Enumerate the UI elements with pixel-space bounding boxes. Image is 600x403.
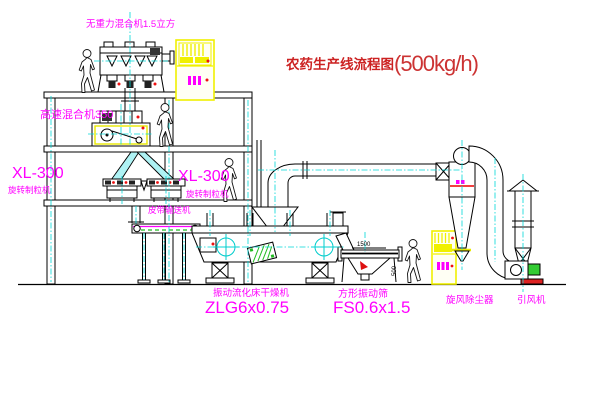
cad-drawing: 无重力混合机1.5立方 高速混合机350 XL-300 旋转制粒机 XL-300… (0, 0, 600, 403)
cabinet-block (180, 57, 193, 63)
feed-duct (252, 161, 436, 228)
valve-body (145, 81, 152, 88)
mixer-side-pipe (162, 54, 170, 61)
red-indicator (212, 243, 215, 246)
conveyor-frame (132, 224, 200, 233)
red-indicator (142, 127, 145, 130)
fan-housing (505, 261, 528, 279)
induced-draft-fan (505, 261, 543, 284)
label-fan: 引风机 (517, 294, 546, 306)
person-top-floor (79, 50, 94, 93)
dryer-vent-pipe (333, 213, 343, 226)
dim-text-500: 500 (392, 265, 398, 276)
red-indicator (207, 60, 210, 63)
process-flow-diagram: 无重力混合机1.5立方 高速混合机350 XL-300 旋转制粒机 XL-300… (0, 0, 600, 403)
granulator-block (129, 181, 135, 185)
mixer-leg (161, 75, 164, 92)
red-indicator (154, 83, 157, 86)
granulator-block (149, 181, 155, 185)
mixer-top-stub (146, 42, 155, 47)
dryer-spring-support (206, 263, 234, 283)
mixer-leg (98, 75, 101, 92)
mixer-top-stub (104, 42, 113, 47)
mixer-gearbox (150, 48, 160, 55)
red-indicator (137, 116, 140, 119)
label-granulator-right-model: XL-300 (178, 168, 230, 185)
label-granulator-left-name: 旋转制粒机 (8, 185, 51, 195)
conveyor-pulley (134, 225, 140, 231)
label-high-speed-mixer: 高速混合机350 (40, 107, 113, 121)
dryer-spring-support (306, 263, 334, 283)
mixer-discharge-valves (107, 75, 157, 88)
cabinet-block (434, 244, 452, 252)
label-sieve-model: FS0.6x1.5 (333, 298, 411, 317)
label-cyclone: 旋风除尘器 (446, 294, 494, 306)
granulator-block (105, 181, 111, 185)
mixer-side-cap (170, 51, 174, 64)
small-pulley (136, 137, 142, 143)
dim-text-1500: 1500 (357, 242, 371, 248)
sieve-leg (342, 258, 344, 282)
dryer-top-rim (192, 226, 348, 233)
red-indicator (206, 79, 209, 82)
red-indicator (112, 181, 115, 184)
red-indicator (118, 83, 121, 86)
label-granulator-right-name: 旋转制粒机 (186, 189, 229, 199)
red-indicator (125, 181, 128, 184)
control-cabinet-top (176, 40, 214, 100)
sieve-hopper (348, 258, 390, 274)
valve (143, 75, 153, 81)
building-slab-middle (44, 146, 252, 152)
diagram-title-capacity: (500kg/h) (394, 51, 478, 76)
diagram-title: 农药生产线流程图 (285, 56, 394, 72)
building-slab-top (44, 92, 252, 98)
sieve-outlet (361, 274, 369, 280)
valve (107, 75, 117, 81)
chute-left-branch (111, 152, 139, 180)
gravity-free-mixer (98, 42, 174, 111)
label-dryer-model: ZLG6x0.75 (205, 298, 289, 317)
red-indicator (156, 181, 159, 184)
granulator-v-hopper (141, 181, 147, 190)
fan-base (521, 279, 543, 284)
mixer-top-stub (125, 42, 134, 47)
red-indicator (451, 265, 454, 268)
label-granulator-left-model: XL-300 (12, 165, 64, 182)
label-belt-conveyor: 皮带输送机 (148, 205, 191, 215)
indicator-text-marks (437, 262, 449, 270)
person-ground (405, 240, 420, 283)
exhaust-u-duct (469, 146, 527, 279)
indicator-text-marks (188, 76, 201, 85)
label-gravity-mixer: 无重力混合机1.5立方 (86, 18, 175, 30)
control-cabinet-right (432, 231, 456, 284)
valve-body (109, 81, 116, 88)
duct-elbow-horizontal (268, 164, 436, 207)
red-indicator (451, 237, 454, 240)
fan-motor (528, 264, 540, 275)
